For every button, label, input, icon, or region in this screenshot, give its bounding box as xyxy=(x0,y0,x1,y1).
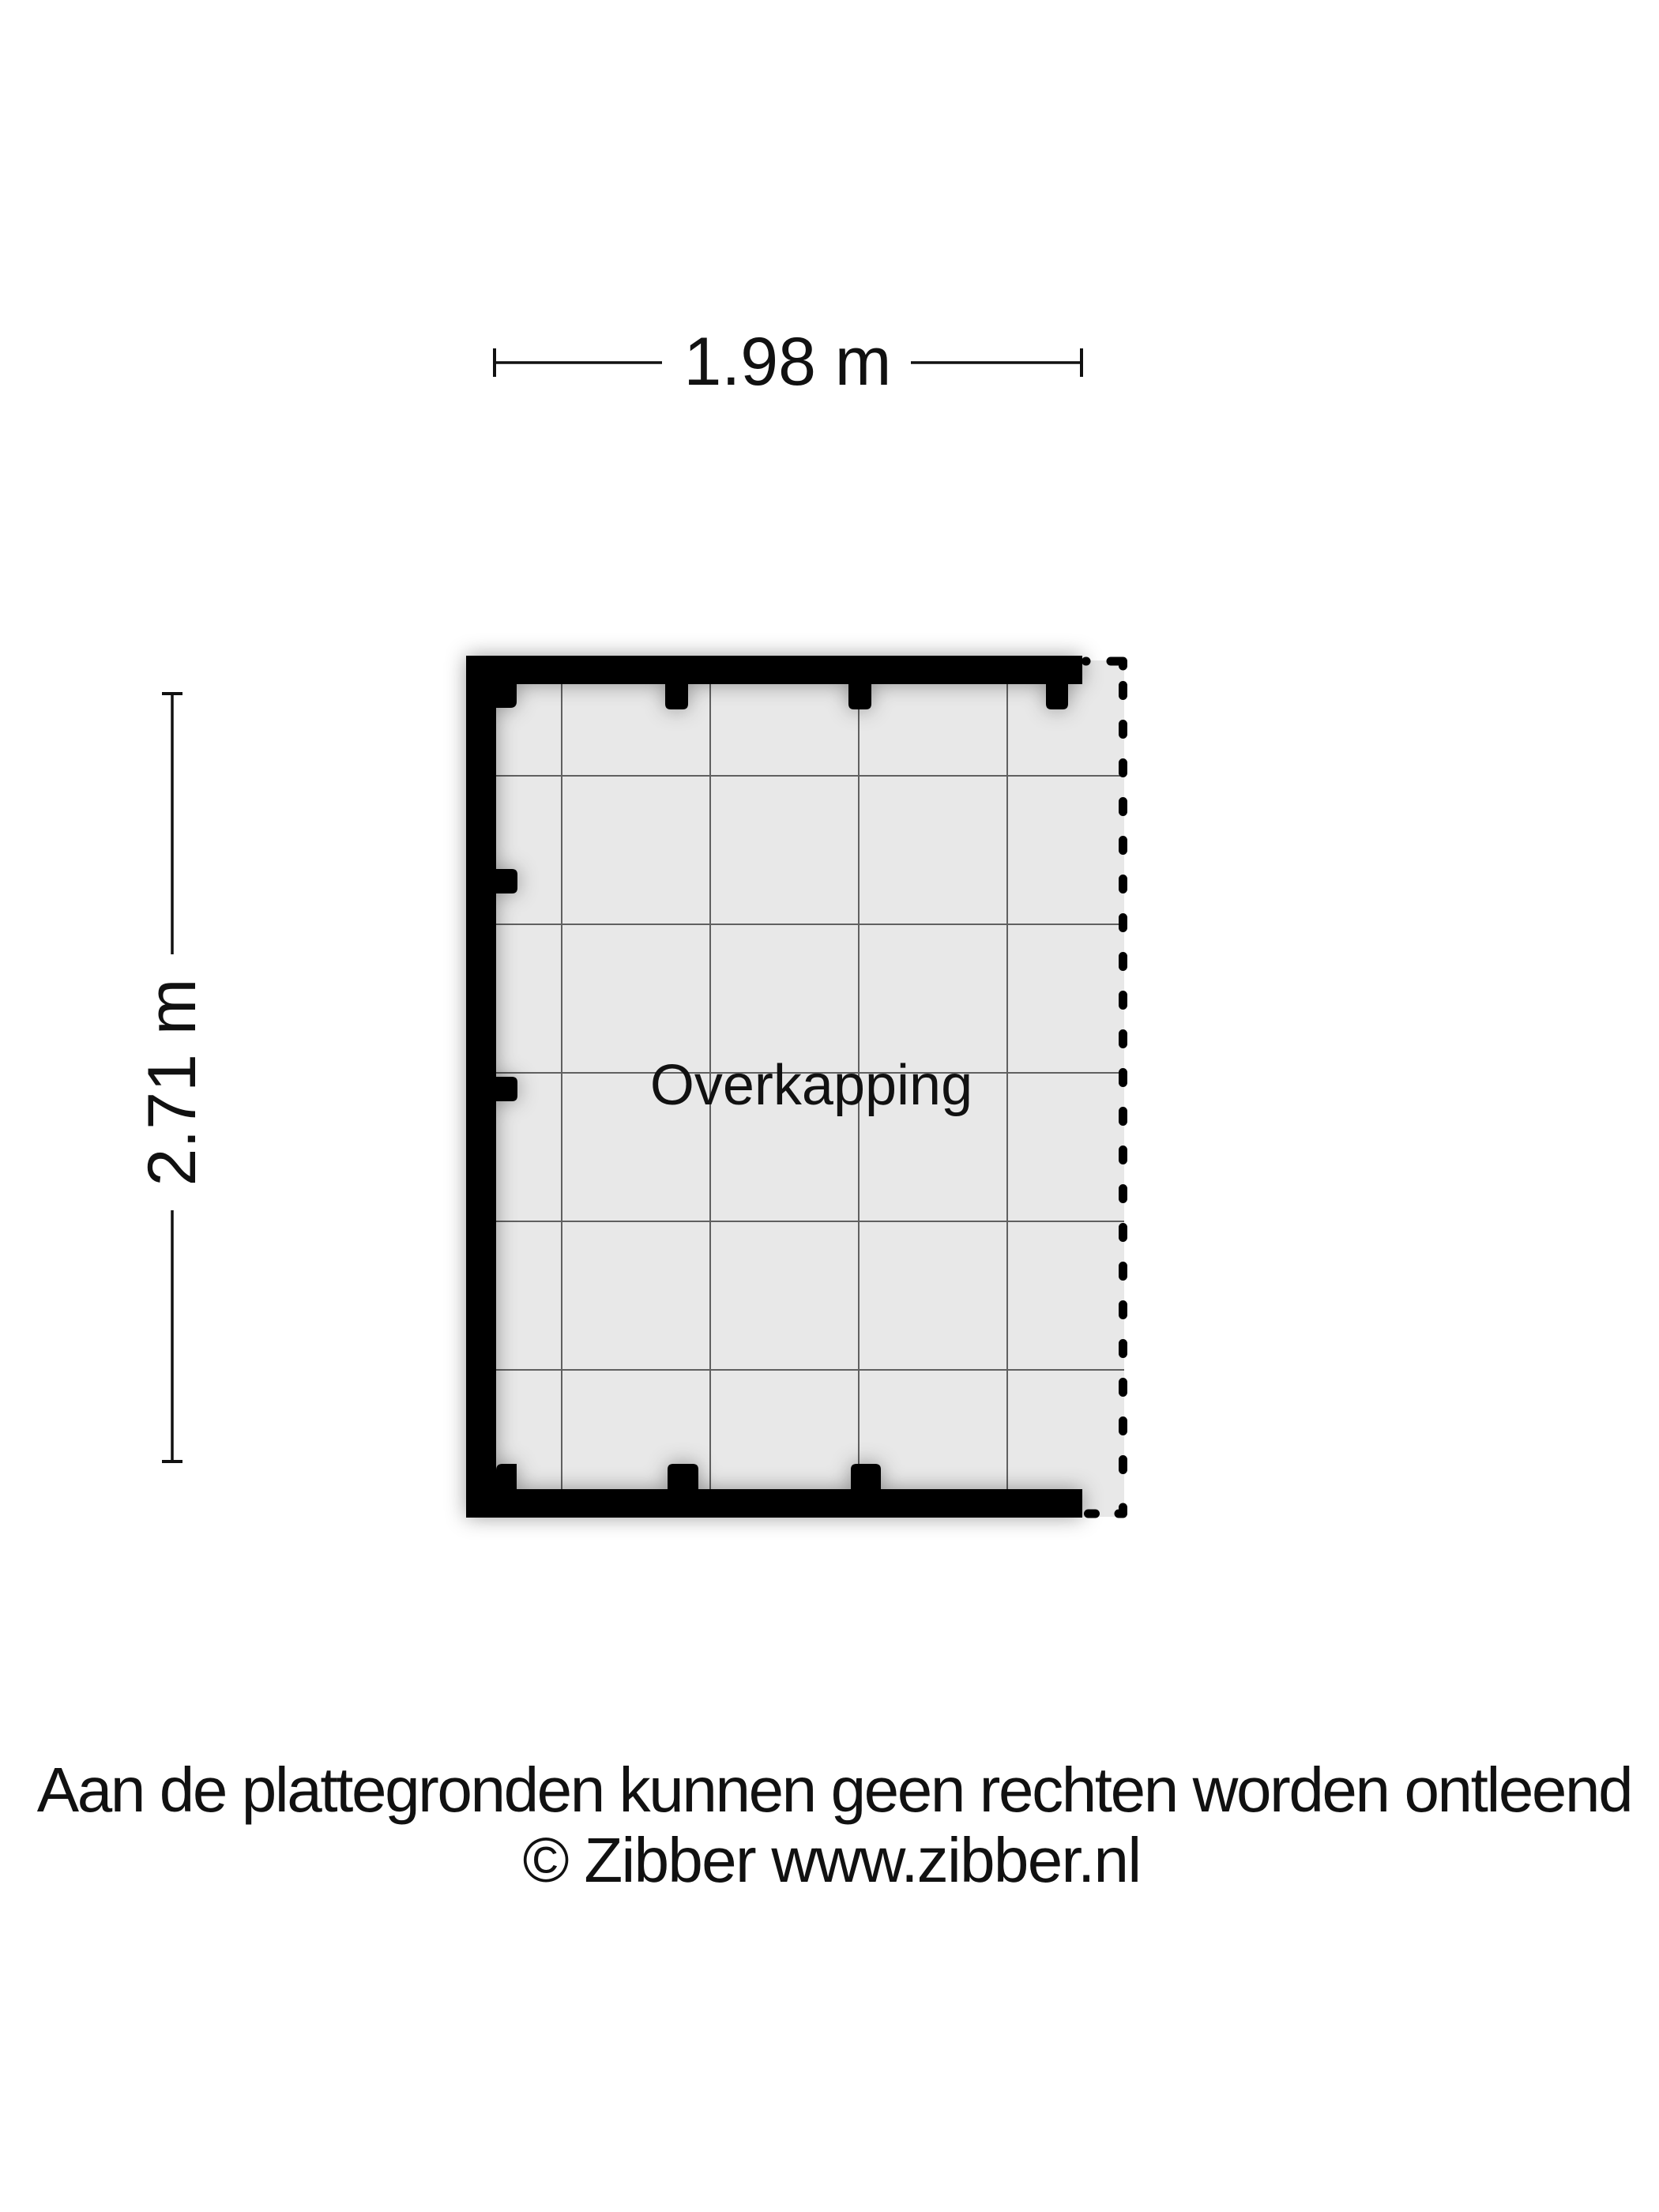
svg-text:Aan de plattegronden kunnen ge: Aan de plattegronden kunnen geen rechten… xyxy=(37,1755,1631,1825)
svg-text:© Zibber www.zibber.nl: © Zibber www.zibber.nl xyxy=(523,1825,1141,1895)
svg-text:2.71 m: 2.71 m xyxy=(134,979,210,1187)
svg-text:Overkapping: Overkapping xyxy=(650,1054,972,1117)
svg-text:1.98 m: 1.98 m xyxy=(684,324,892,400)
